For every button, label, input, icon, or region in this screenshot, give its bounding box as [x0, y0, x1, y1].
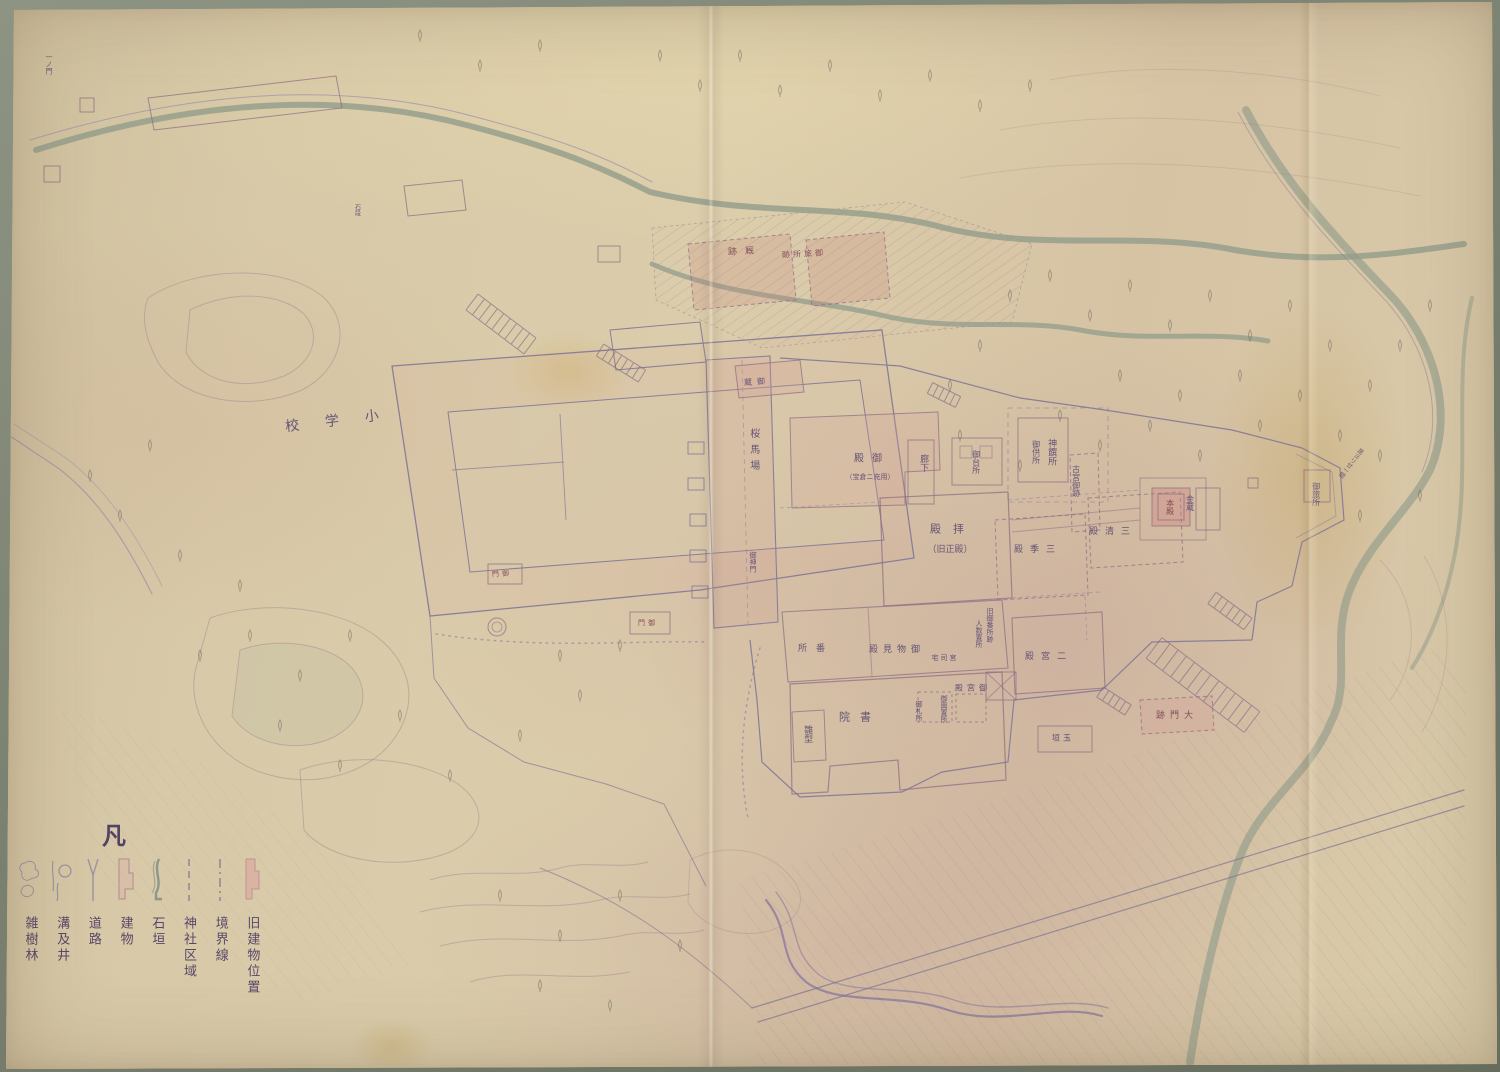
building-symbol: [114, 852, 136, 908]
legend-label: 溝及井: [52, 916, 71, 964]
map-sheet: 校学小跡厩跡所旅御桜馬場御神門殿御（宝倉ニ充用）廊下御台所殿拝（旧正殿）神饌所御…: [0, 0, 1500, 1072]
legend-label: 雑樹林: [21, 916, 40, 964]
legend-title: 凡: [102, 816, 126, 851]
old-building-position-symbol: [242, 852, 262, 908]
map-legend: 凡 旧建物位置境界線神社区域石垣建物道路溝及井雑樹林: [16, 814, 268, 1064]
slope-hatching: [58, 202, 1466, 1064]
legend-item-shrine-area: 神社区域: [175, 852, 203, 996]
legend-label: 建物: [116, 916, 135, 948]
legend-label: 石垣: [147, 916, 166, 948]
legend-item-mixed-forest: 雑樹林: [16, 852, 44, 996]
legend-item-old-building-position: 旧建物位置: [238, 852, 266, 996]
legend-item-road: 道路: [79, 852, 107, 996]
legend-label: 道路: [84, 916, 103, 948]
legend-item-building: 建物: [111, 852, 139, 996]
stone-wall-symbol: [146, 852, 168, 908]
road-symbol: [83, 852, 103, 908]
legend-item-boundary-line: 境界線: [206, 852, 234, 996]
legend-label: 神社区域: [179, 916, 198, 980]
shrine-area-symbol: [185, 852, 193, 908]
mixed-forest-symbol: [17, 852, 43, 908]
legend-item-ditch-and-well: 溝及井: [48, 852, 76, 996]
scanned-map-photo: 校学小跡厩跡所旅御桜馬場御神門殿御（宝倉ニ充用）廊下御台所殿拝（旧正殿）神饌所御…: [0, 0, 1500, 1072]
legend-items: 旧建物位置境界線神社区域石垣建物道路溝及井雑樹林: [16, 852, 266, 996]
ditch-and-well-symbol: [49, 852, 75, 908]
legend-label: 境界線: [211, 916, 230, 964]
boundary-line-symbol: [216, 852, 224, 908]
legend-label: 旧建物位置: [242, 916, 261, 996]
legend-item-stone-wall: 石垣: [143, 852, 171, 996]
